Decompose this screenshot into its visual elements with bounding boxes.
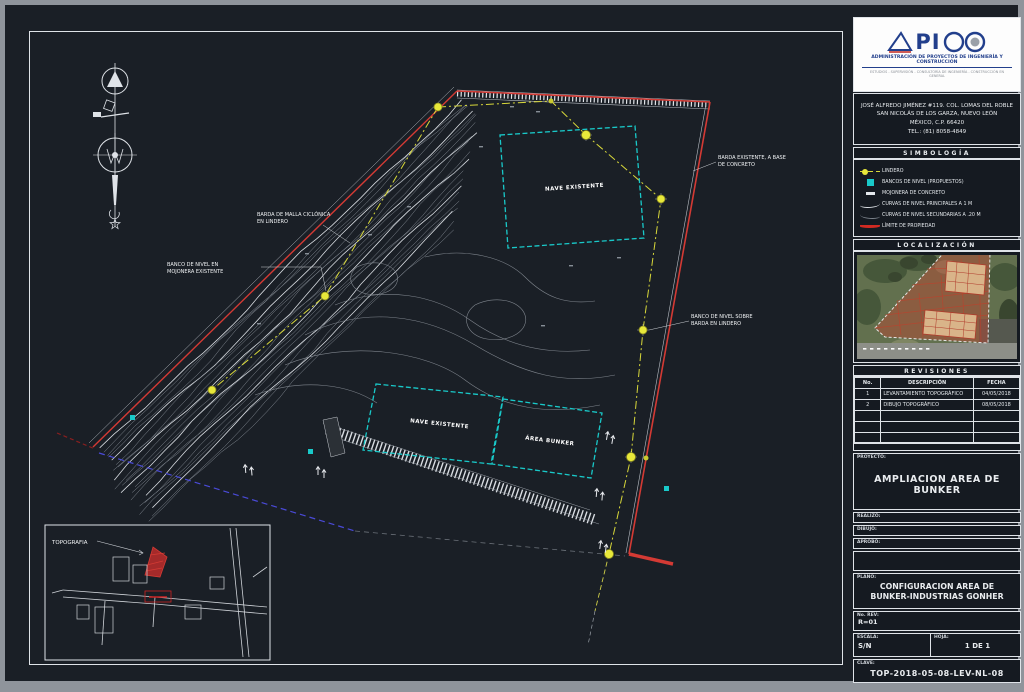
property-boundary [57,87,710,564]
lindero-tail [595,554,609,611]
svg-text:BARDA EN LINDERO: BARDA EN LINDERO [691,321,741,327]
svg-text:DE CONCRETO: DE CONCRETO [718,162,755,168]
bottom-boundary-gray [355,531,625,556]
revisions-header: REVISIONES [853,365,1021,376]
mojonera-icon [858,192,882,195]
legend-item: CURVAS DE NIVEL SECUNDARIAS A .20 M [858,210,1016,221]
lindero-icon [858,169,882,175]
scale-value: S/N [854,642,930,650]
logo-letters: PI [915,32,940,53]
address-line: JOSÉ ALFREDO JIMÉNEZ #119. COL. LOMAS DE… [854,102,1020,111]
field-aprobo: APROBÓ: [853,538,1021,549]
logo-circles-icon [943,31,987,53]
address-line: MÉXICO, C.P. 66420 [854,119,1020,128]
sheet-background: NAVE EXISTENTE NAVE EXISTENTE ÁREA BUNKE… [5,5,1018,681]
revision-row [855,422,1020,433]
apico-logo-icon: PI [887,31,986,53]
revision-row: 1 LEVANTAMIENTO TOPOGRÁFICO 04/05/2018 [855,389,1020,400]
lindero-lines [212,101,661,554]
svg-text:BANCO DE NIVEL SOBRE: BANCO DE NIVEL SOBRE [691,314,753,320]
logo-subtagline: ESTUDIOS - SUPERVISIÓN - CONSULTORÍA DE … [862,67,1012,78]
building-label: ÁREA BUNKER [525,434,575,447]
notes-box [853,551,1021,571]
north-arrow-icon [93,63,137,229]
field-dibujo: DIBUJÓ: [853,525,1021,536]
location-header: LOCALIZACIÓN [853,239,1021,251]
bottom-boundary-blue [99,453,355,531]
project-label: PROYECTO: [854,454,1020,460]
field-realizo: REALIZÓ: [853,512,1021,523]
legend-item: MOJONERA DE CONCRETO [858,188,1016,199]
project-box: PROYECTO: AMPLIACION AREA DE BUNKER [853,453,1021,510]
lindero-markers [208,99,667,559]
inset-key-map: TOPOGRAFIA [45,525,270,660]
sheet-number: 1 DE 1 [931,642,1020,650]
project-title: AMPLIACION AREA DE BUNKER [854,474,1020,496]
survey-arrow-symbols [243,431,616,553]
location-map-box [853,251,1021,363]
cad-sheet: { "colors":{ "boundary_red":"#d43a34","l… [0,0,1024,687]
building-label: NAVE EXISTENTE [545,183,604,193]
drawing-code-box: CLAVE: TOP-2018-05-08-LEV-NL-08 [853,659,1021,683]
inset-site-polygon [145,547,167,577]
svg-text:EN LINDERO: EN LINDERO [257,219,288,225]
scale-box: ESCALA: S/N [853,633,931,657]
tail-gray [588,611,595,645]
address-line: TEL.: (81) 8058-4849 [854,128,1020,137]
inset-label: TOPOGRAFIA [51,540,88,546]
svg-text:BARDA EXISTENTE, A BASE: BARDA EXISTENTE, A BASE [718,155,786,161]
limite-propiedad-icon [858,225,882,229]
callouts: BARDA EXISTENTE, A BASE DE CONCRETO BARD… [167,155,786,330]
revision-row: 2 DIBUJO TOPOGRÁFICO 08/05/2018 [855,400,1020,411]
company-logo-box: PI ADMINISTRACIÓN DE PROYECTOS DE INGENI… [853,17,1021,92]
satellite-image [857,255,1017,359]
contour-lines [100,100,477,522]
legend-header: SIMBOLOGÍA [853,147,1021,159]
banco-nivel-icon [858,179,882,186]
legend-item: CURVAS DE NIVEL PRINCIPALES A 1 M [858,199,1016,210]
svg-text:BARDA DE MALLA CICLÓNICA: BARDA DE MALLA CICLÓNICA [257,211,331,218]
drawing-code: TOP-2018-05-08-LEV-NL-08 [854,669,1020,678]
legend-item: BANCOS DE NIVEL (PROPUESTOS) [858,177,1016,188]
site-plan-drawing: NAVE EXISTENTE NAVE EXISTENTE ÁREA BUNKE… [5,5,848,692]
curva-mayor-icon [858,201,882,208]
logo-tagline: ADMINISTRACIÓN DE PROYECTOS DE INGENIERÍ… [854,55,1020,65]
curva-menor-icon [858,212,882,219]
address-line: SAN NICOLÁS DE LOS GARZA, NUEVO LEÓN [854,110,1020,119]
revisions-header-row: No. DESCRIPCIÓN FECHA [855,378,1020,389]
building-label: NAVE EXISTENTE [410,418,469,430]
revision-number-box: No. REV: R=01 [853,611,1021,631]
svg-text:MOJONERA EXISTENTE: MOJONERA EXISTENTE [167,269,223,275]
revisions-table: No. DESCRIPCIÓN FECHA 1 LEVANTAMIENTO TO… [853,376,1021,443]
revision-row [855,411,1020,422]
escarpment-hatch [323,417,599,524]
sheet-title-box: PLANO: CONFIGURACION AREA DE BUNKER-INDU… [853,573,1021,609]
company-address: JOSÉ ALFREDO JIMÉNEZ #119. COL. LOMAS DE… [853,93,1021,145]
sheet-title: CONFIGURACION AREA DE BUNKER-INDUSTRIAS … [854,582,1020,601]
revisions-spacer [853,443,1021,451]
revision-number: R=01 [854,618,1020,626]
legend-item: LINDERO [858,166,1016,177]
revision-row [855,433,1020,444]
sheet-title-label: PLANO: [854,574,1020,580]
legend-item: LÍMITE DE PROPIEDAD [858,221,1016,232]
svg-text:BANCO DE NIVEL EN: BANCO DE NIVEL EN [167,262,219,268]
sheet-number-box: HOJA: 1 DE 1 [930,633,1021,657]
legend-body: LINDERO BANCOS DE NIVEL (PROPUESTOS) MOJ… [853,159,1021,237]
